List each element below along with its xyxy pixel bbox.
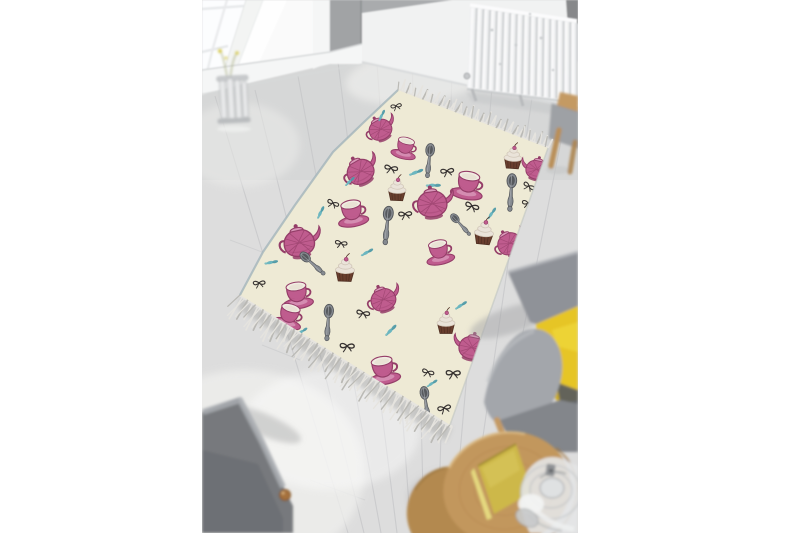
radiator-valve	[464, 73, 470, 79]
flower-bud	[218, 49, 222, 53]
chair-wood-knob	[280, 490, 291, 501]
product-photo-canvas	[0, 0, 800, 533]
room-photo	[0, 0, 800, 533]
